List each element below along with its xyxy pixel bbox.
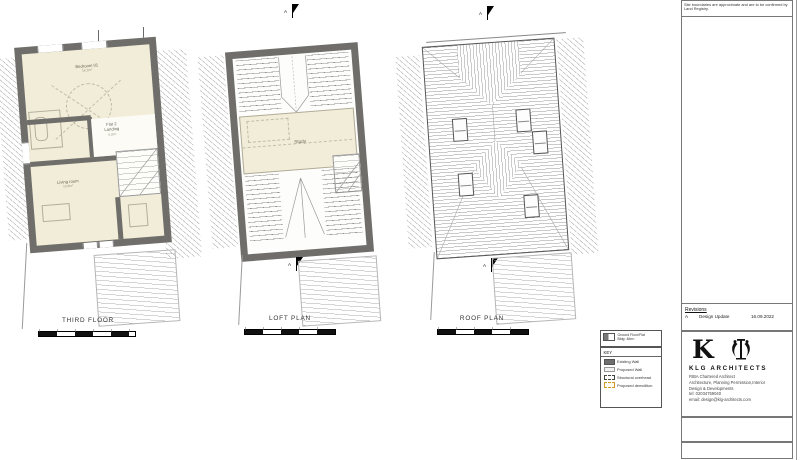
section-letter: A xyxy=(479,11,482,16)
scale-bar xyxy=(244,329,336,335)
wall-segment xyxy=(115,197,123,239)
section-flag-icon xyxy=(488,6,494,15)
key-label: Existing Wall xyxy=(617,359,639,364)
sloped-ceiling-hatch xyxy=(306,52,352,109)
key-title: KEY xyxy=(604,350,662,355)
section-letter: A xyxy=(284,9,287,14)
plan-title-roof: ROOF PLAN xyxy=(438,315,526,322)
logo-box: K KLG ARCHITECTS RIBA Chartered Architec… xyxy=(681,331,793,417)
area-swatch xyxy=(603,333,615,341)
note-box: Site boundaries are approximate and are … xyxy=(681,0,793,17)
key-label: Proposed Wall xyxy=(617,367,642,372)
boundary-line xyxy=(238,255,243,325)
revision-date: 16.09.2022 xyxy=(751,314,774,319)
rooflight xyxy=(532,130,549,154)
scale-bar xyxy=(437,329,529,335)
gable-lines xyxy=(279,170,327,239)
rooflight xyxy=(458,173,475,197)
section-marker-a: A xyxy=(479,6,497,22)
proposed-demolition-swatch xyxy=(604,382,615,388)
room-label-living: Living room 19.8m² xyxy=(36,177,101,191)
revision-description: Design Update xyxy=(699,314,751,319)
dormer-lines xyxy=(278,55,311,115)
key-separator xyxy=(601,356,661,357)
window-gap xyxy=(81,41,107,50)
staircase xyxy=(116,148,161,197)
key-legend-box: KEY Existing Wall Proposed Wall Structur… xyxy=(600,347,662,408)
section-pole xyxy=(292,4,293,18)
section-letter: A xyxy=(288,262,291,267)
sofa xyxy=(42,203,71,222)
plan-third-floor: Bedroom 01 16.2m² Flat 2 Landing 4.2m² L… xyxy=(14,37,172,254)
door-gap xyxy=(99,240,114,248)
key-label: Proposed demolition xyxy=(617,383,652,388)
roof-hatch xyxy=(245,174,284,242)
revisions-title: Revisions xyxy=(685,307,792,313)
section-pole xyxy=(296,257,297,271)
firm-email: email: design@klg-architects.com xyxy=(689,397,792,403)
plan-title-loft: LOFT PLAN xyxy=(246,315,334,322)
firm-name: KLG ARCHITECTS xyxy=(689,365,792,372)
closet xyxy=(128,203,149,227)
room-label-bedroom: Bedroom 01 16.2m² xyxy=(37,59,137,76)
door-gap xyxy=(83,241,98,249)
scale-bar xyxy=(38,331,136,337)
boundary-line xyxy=(430,252,435,320)
revisions-box: Revisions A Design Update 16.09.2022 xyxy=(681,303,793,331)
area-summary-text: Ground Floor/Flat Bldg: 46m² xyxy=(618,333,645,341)
revision-row: A Design Update 16.09.2022 xyxy=(685,314,792,319)
area-line-2: Bldg: 46m² xyxy=(618,337,635,341)
window-gap xyxy=(37,44,63,53)
rooflight xyxy=(523,194,540,218)
empty-title-box xyxy=(681,417,793,442)
window-gap xyxy=(22,142,30,164)
key-item-structural-overhead: Structural overhead xyxy=(604,375,662,381)
k-logo: K xyxy=(692,337,714,362)
drawing-sheet: Bedroom 01 16.2m² Flat 2 Landing 4.2m² L… xyxy=(0,0,800,460)
logo-row: K xyxy=(682,332,792,362)
key-label: Structural overhead xyxy=(617,375,651,380)
section-pole xyxy=(487,6,488,20)
room-label-landing: Flat 2 Landing 4.2m² xyxy=(91,120,132,138)
plan-title-third-floor: THIRD FLOOR xyxy=(36,317,140,324)
roof-hatch xyxy=(322,168,363,237)
key-item-existing-wall: Existing Wall xyxy=(604,359,662,365)
section-marker-a: A xyxy=(284,4,302,20)
empty-title-box xyxy=(681,442,793,459)
garden-hatch xyxy=(94,249,181,327)
crest-icon xyxy=(728,336,754,362)
garden-hatch xyxy=(492,252,576,324)
area-summary-box: Ground Floor/Flat Bldg: 46m² xyxy=(600,330,662,347)
plan-roof xyxy=(422,38,570,260)
key-item-proposed-demolition: Proposed demolition xyxy=(604,382,662,388)
sloped-ceiling-hatch xyxy=(236,57,282,114)
rooflight xyxy=(515,108,532,132)
revision-letter: A xyxy=(685,314,699,319)
boundary-line xyxy=(22,243,27,329)
sheet-edge-line xyxy=(796,0,797,460)
structural-overhead-swatch xyxy=(604,375,615,381)
key-item-proposed-wall: Proposed Wall xyxy=(604,367,662,373)
section-letter: A xyxy=(483,263,486,268)
plan-loft: Study xyxy=(225,42,374,262)
wall-segment xyxy=(30,155,116,166)
proposed-wall-swatch xyxy=(604,367,615,373)
section-flag-icon xyxy=(293,4,299,13)
existing-wall-swatch xyxy=(604,359,615,365)
rooflight xyxy=(452,118,469,142)
